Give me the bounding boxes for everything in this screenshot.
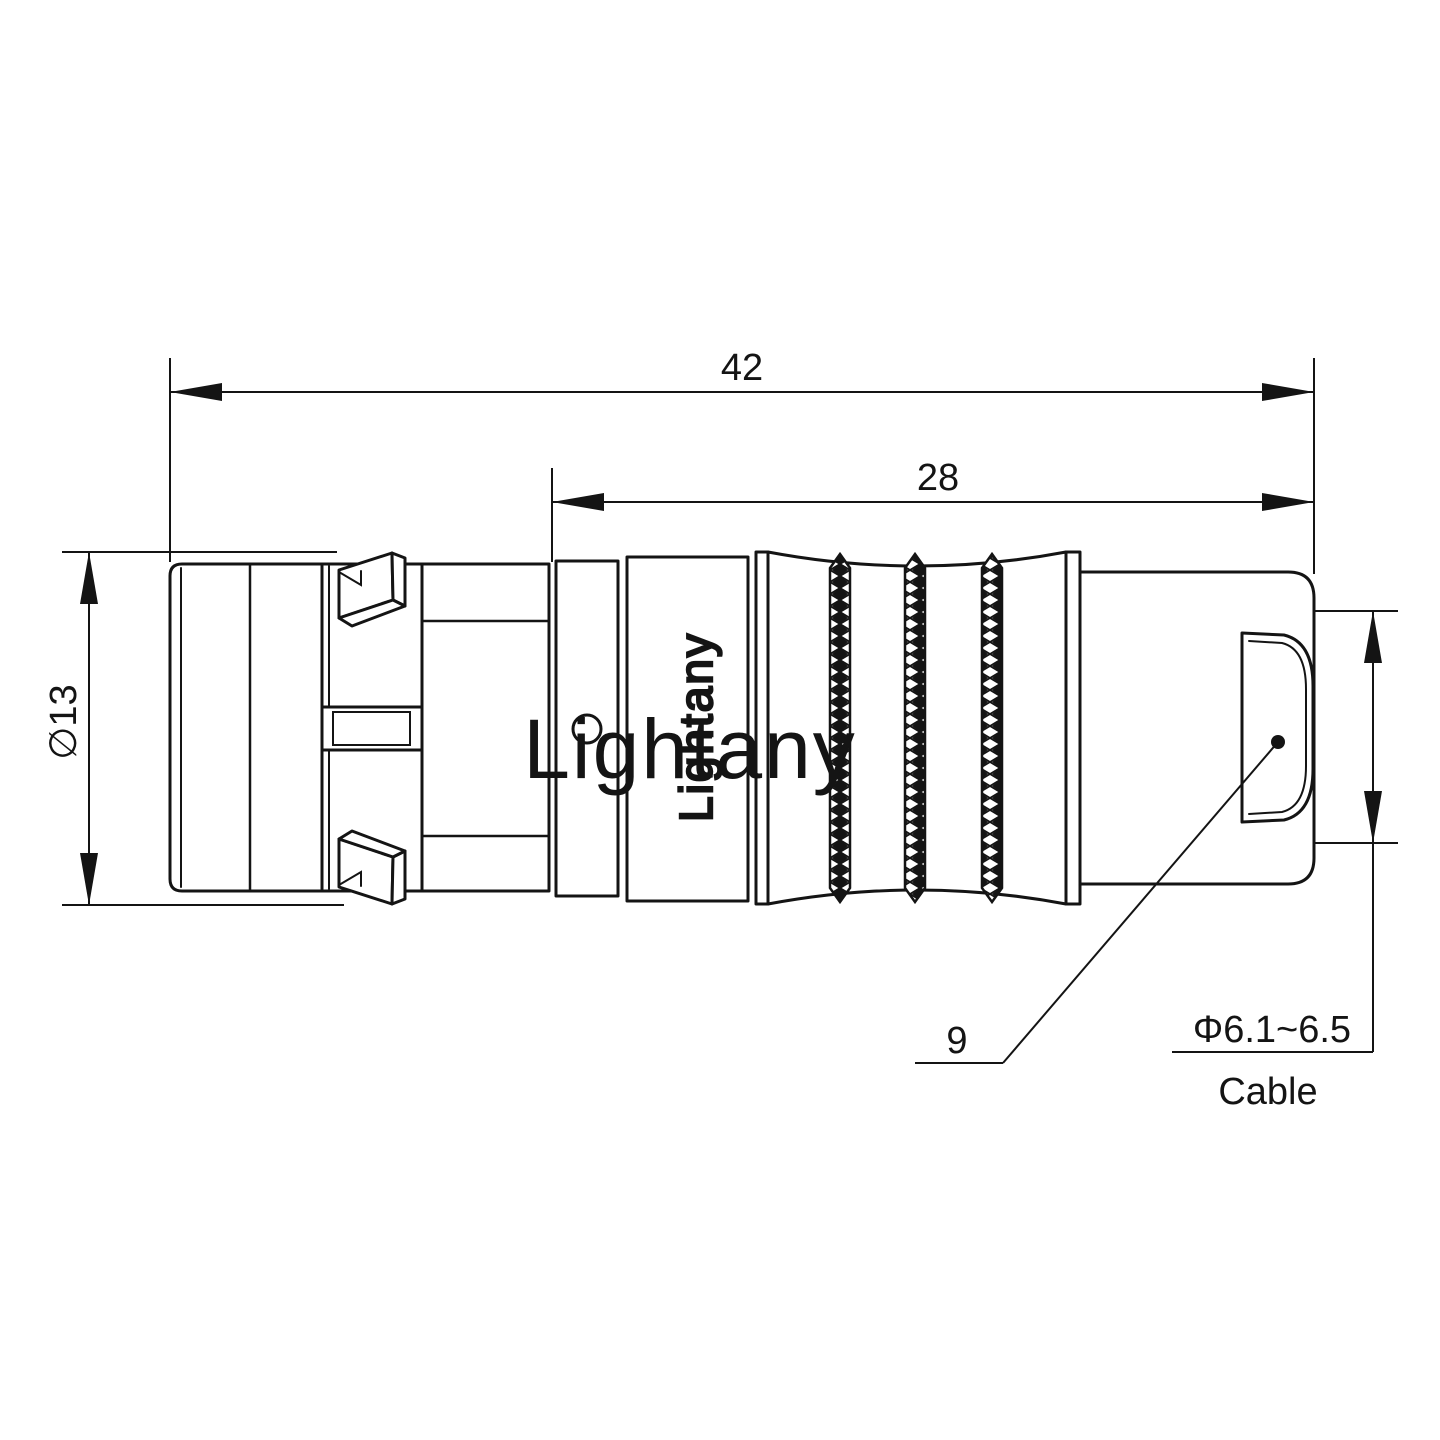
dimension-overall-length: 42 bbox=[170, 347, 1314, 574]
dim-overall-length-text: 42 bbox=[721, 347, 763, 389]
connector-drawing-canvas: Lightany Lightany 42 28 ∅13 9 bbox=[0, 0, 1440, 1440]
latch-wedge-top-side bbox=[392, 553, 405, 606]
dimension-rear-length: 28 bbox=[552, 457, 1314, 562]
dim-13-arrow-top bbox=[80, 552, 98, 604]
knurl-band-3 bbox=[982, 554, 1002, 902]
cable-word-label: Cable bbox=[1218, 1071, 1317, 1113]
cable-diameter-label: Φ6.1~6.5 bbox=[1193, 1009, 1351, 1051]
dim-cable-arrow-top bbox=[1364, 611, 1382, 663]
dim-shell-diameter-text: ∅13 bbox=[43, 684, 85, 759]
grip-right-shoulder bbox=[1066, 552, 1080, 904]
dim-28-arrow-right bbox=[1262, 493, 1314, 511]
knurl-band-2 bbox=[905, 554, 925, 902]
latch-mid-band bbox=[322, 707, 422, 750]
dim-42-arrow-left bbox=[170, 383, 222, 401]
latch-wedge-bottom-side bbox=[392, 851, 405, 904]
dim-28-arrow-left bbox=[552, 493, 604, 511]
dim-rear-length-text: 28 bbox=[917, 457, 959, 499]
dim-42-arrow-right bbox=[1262, 383, 1314, 401]
dim-13-arrow-bottom bbox=[80, 853, 98, 905]
ref-9-label: 9 bbox=[946, 1020, 967, 1062]
technical-drawing-page: Lightany Lightany 42 28 ∅13 9 bbox=[0, 0, 1440, 1440]
engraving-text: Lightany bbox=[670, 632, 722, 822]
dim-cable-arrow-bottom bbox=[1364, 791, 1382, 843]
